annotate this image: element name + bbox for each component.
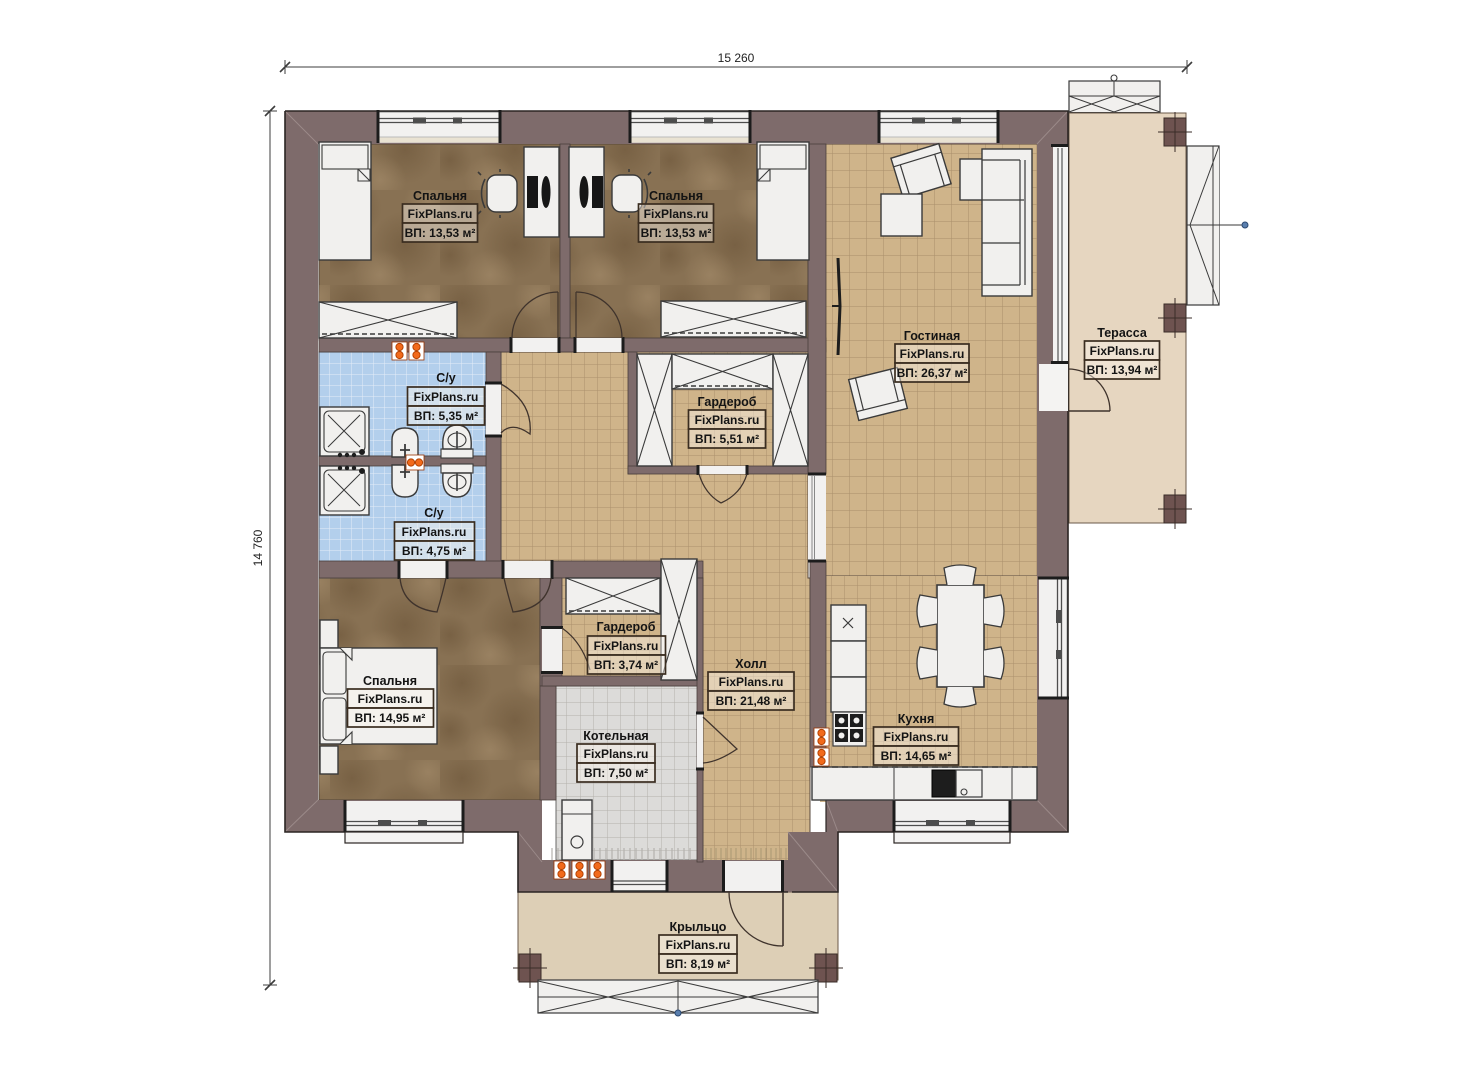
svg-text:Котельная: Котельная	[583, 729, 648, 743]
svg-text:ВП: 3,74 м²: ВП: 3,74 м²	[594, 658, 658, 672]
svg-text:14 760: 14 760	[251, 529, 265, 566]
svg-text:ВП: 13,53 м²: ВП: 13,53 м²	[405, 226, 476, 240]
svg-text:Спальня: Спальня	[413, 189, 467, 203]
svg-text:ВП: 21,48 м²: ВП: 21,48 м²	[716, 694, 787, 708]
svg-text:ВП: 5,35 м²: ВП: 5,35 м²	[414, 409, 478, 423]
svg-text:FixPlans.ru: FixPlans.ru	[644, 207, 709, 221]
svg-text:FixPlans.ru: FixPlans.ru	[900, 347, 965, 361]
svg-text:ВП: 8,19 м²: ВП: 8,19 м²	[666, 957, 730, 971]
svg-text:FixPlans.ru: FixPlans.ru	[414, 390, 479, 404]
svg-text:Спальня: Спальня	[649, 189, 703, 203]
svg-text:FixPlans.ru: FixPlans.ru	[402, 525, 467, 539]
svg-text:С/у: С/у	[424, 506, 444, 520]
svg-text:ВП: 13,53 м²: ВП: 13,53 м²	[641, 226, 712, 240]
svg-text:FixPlans.ru: FixPlans.ru	[594, 639, 659, 653]
svg-text:Гардероб: Гардероб	[697, 395, 756, 409]
svg-text:Терасса: Терасса	[1097, 326, 1148, 340]
svg-text:С/у: С/у	[436, 371, 456, 385]
svg-text:ВП: 14,65 м²: ВП: 14,65 м²	[881, 749, 952, 763]
svg-text:ВП: 5,51 м²: ВП: 5,51 м²	[695, 432, 759, 446]
svg-text:FixPlans.ru: FixPlans.ru	[695, 413, 760, 427]
svg-text:Гардероб: Гардероб	[596, 620, 655, 634]
svg-text:FixPlans.ru: FixPlans.ru	[358, 692, 423, 706]
svg-text:FixPlans.ru: FixPlans.ru	[884, 730, 949, 744]
svg-text:FixPlans.ru: FixPlans.ru	[584, 747, 649, 761]
svg-text:Гостиная: Гостиная	[904, 329, 961, 343]
svg-text:FixPlans.ru: FixPlans.ru	[1090, 344, 1155, 358]
svg-text:Кухня: Кухня	[898, 712, 935, 726]
svg-text:ВП: 13,94 м²: ВП: 13,94 м²	[1087, 363, 1158, 377]
svg-text:FixPlans.ru: FixPlans.ru	[666, 938, 731, 952]
svg-text:15 260: 15 260	[718, 51, 755, 65]
svg-text:ВП: 4,75 м²: ВП: 4,75 м²	[402, 544, 466, 558]
svg-text:Спальня: Спальня	[363, 674, 417, 688]
svg-text:Крыльцо: Крыльцо	[670, 920, 727, 934]
svg-text:FixPlans.ru: FixPlans.ru	[408, 207, 473, 221]
svg-text:ВП: 7,50 м²: ВП: 7,50 м²	[584, 766, 648, 780]
svg-text:ВП: 26,37 м²: ВП: 26,37 м²	[897, 366, 968, 380]
svg-text:FixPlans.ru: FixPlans.ru	[719, 675, 784, 689]
svg-text:ВП: 14,95 м²: ВП: 14,95 м²	[355, 711, 426, 725]
svg-text:Холл: Холл	[735, 657, 766, 671]
